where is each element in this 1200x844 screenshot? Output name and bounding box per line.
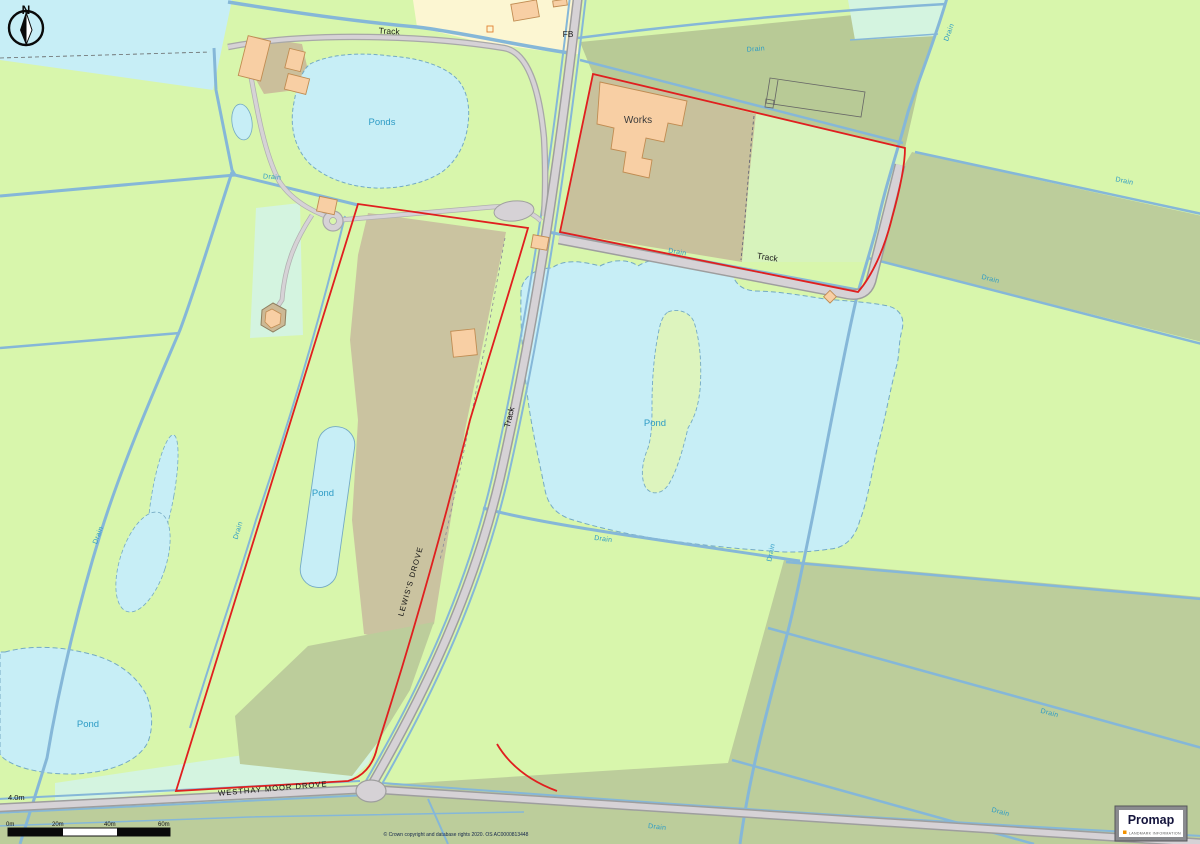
building-left-parcel <box>451 329 478 357</box>
logo-name: Promap <box>1128 813 1175 827</box>
track-loop-island <box>330 218 337 225</box>
map-label-water-lg: Pond <box>77 719 99 730</box>
map-label-works: Works <box>624 115 652 126</box>
copyright-text: © Crown copyright and database rights 20… <box>384 831 529 838</box>
scale-label-60: 60m <box>158 822 170 828</box>
scale-label-0: 0m <box>6 822 14 828</box>
map-label-water-lg: Pond <box>312 488 334 499</box>
height-annotation: 4.0m <box>8 793 25 802</box>
scale-bar-segment-2 <box>117 828 170 836</box>
logo-orange-square-icon <box>1123 831 1127 835</box>
map-label-water-lg: Ponds <box>369 117 396 128</box>
glyph-small-structure <box>487 26 493 32</box>
scale-label-20: 20m <box>52 822 64 828</box>
promap-logo: Promap LANDMARK INFORMATION <box>1115 806 1187 841</box>
compass-n-label: N <box>22 3 31 17</box>
logo-tagline: LANDMARK INFORMATION <box>1129 832 1181 836</box>
map-svg: N 0m 20m 40m 60m 4.0m © Crown copyright … <box>0 0 1200 844</box>
map-label-black: Track <box>378 25 400 36</box>
building-small-northwest <box>317 196 338 214</box>
junction-bulb-south <box>356 780 386 802</box>
scale-bar-segment-1 <box>8 828 63 836</box>
map-label-water-sm: Drain <box>263 173 282 181</box>
building-junction <box>531 235 549 251</box>
map-label-black: FB <box>563 29 574 39</box>
pond-central <box>521 260 903 552</box>
map-canvas: N 0m 20m 40m 60m 4.0m © Crown copyright … <box>0 0 1200 844</box>
scale-label-40: 40m <box>104 822 116 828</box>
map-label-water-lg: Pond <box>644 418 666 429</box>
